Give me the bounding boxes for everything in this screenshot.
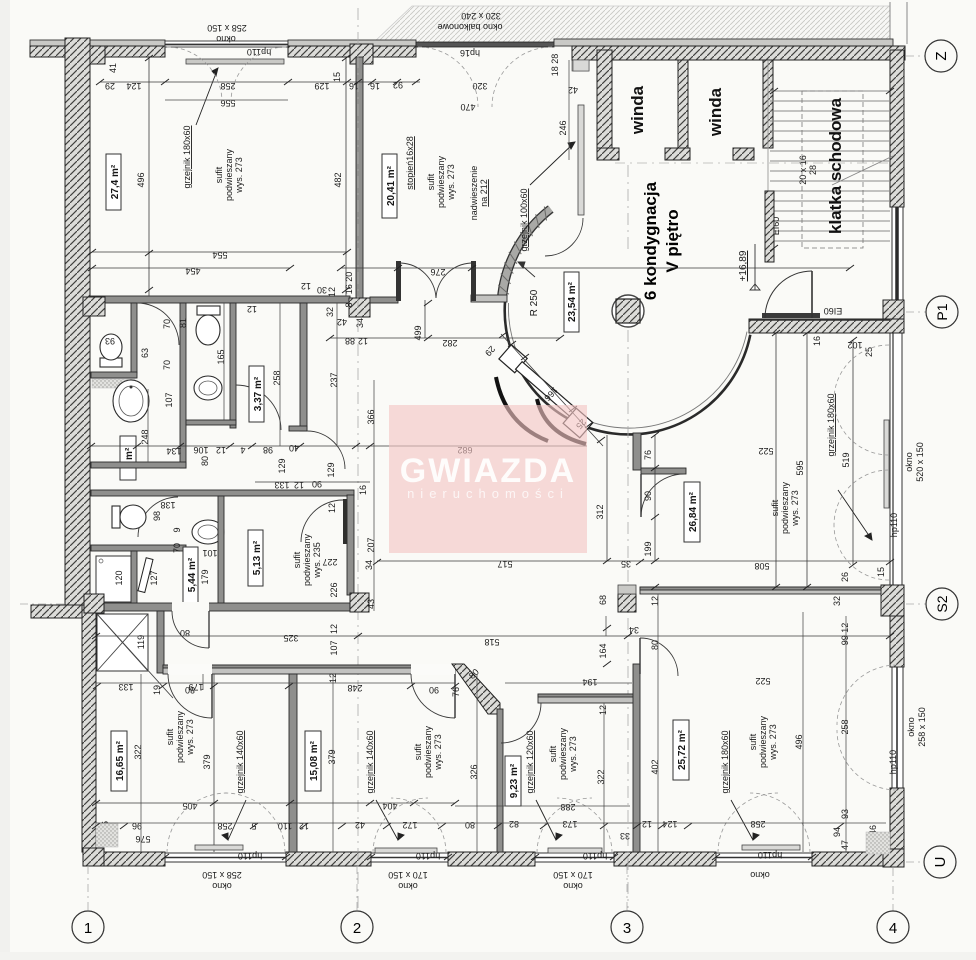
svg-text:okno: okno — [398, 881, 418, 891]
svg-text:379: 379 — [327, 749, 337, 764]
svg-text:165: 165 — [216, 349, 226, 364]
svg-text:482: 482 — [333, 172, 343, 187]
svg-text:wys. 273: wys. 273 — [790, 490, 800, 527]
svg-text:325: 325 — [283, 633, 298, 643]
svg-text:258: 258 — [840, 719, 850, 734]
svg-text:wys. 273: wys. 273 — [234, 157, 244, 194]
svg-text:U: U — [932, 857, 949, 868]
svg-text:15,08 m²: 15,08 m² — [309, 740, 320, 781]
svg-text:sufit: sufit — [548, 745, 558, 762]
svg-text:34: 34 — [364, 560, 374, 570]
svg-text:322: 322 — [596, 769, 606, 784]
svg-text:hp16: hp16 — [460, 48, 480, 58]
svg-text:520 x 150: 520 x 150 — [915, 442, 925, 482]
svg-text:Z: Z — [933, 51, 950, 60]
svg-text:258 x 150: 258 x 150 — [917, 707, 927, 747]
svg-text:+16,89: +16,89 — [738, 250, 749, 281]
svg-text:90: 90 — [643, 491, 653, 501]
svg-text:12: 12 — [216, 445, 226, 455]
svg-text:172: 172 — [402, 820, 417, 830]
svg-text:207: 207 — [366, 537, 376, 552]
svg-text:5,44 m²: 5,44 m² — [187, 557, 198, 592]
svg-text:170 x 150: 170 x 150 — [388, 870, 428, 880]
svg-text:winda: winda — [628, 85, 647, 135]
svg-text:35: 35 — [621, 559, 631, 569]
svg-text:hp110: hp110 — [758, 850, 782, 860]
svg-text:hp110: hp110 — [238, 851, 262, 861]
svg-text:98: 98 — [263, 445, 273, 455]
svg-text:podwieszany: podwieszany — [758, 715, 768, 768]
svg-text:okno: okno — [750, 870, 770, 880]
svg-text:S2: S2 — [934, 595, 950, 612]
svg-text:326: 326 — [469, 764, 479, 779]
svg-text:576: 576 — [135, 834, 150, 844]
svg-text:okno: okno — [906, 717, 916, 737]
svg-text:70: 70 — [162, 360, 172, 370]
svg-text:podwieszany: podwieszany — [436, 155, 446, 208]
svg-text:246: 246 — [558, 120, 568, 135]
svg-text:402: 402 — [650, 759, 660, 774]
svg-text:508: 508 — [754, 561, 769, 571]
svg-text:nieruchomości: nieruchomości — [407, 486, 569, 501]
svg-text:68: 68 — [598, 595, 608, 605]
svg-text:179: 179 — [188, 682, 203, 692]
svg-text:sufit: sufit — [165, 728, 175, 745]
svg-text:518: 518 — [484, 637, 499, 647]
svg-text:173: 173 — [562, 819, 577, 829]
svg-text:winda: winda — [706, 87, 725, 137]
svg-text:15: 15 — [332, 72, 342, 82]
svg-text:hp110: hp110 — [583, 851, 607, 861]
svg-text:wys. 273: wys. 273 — [768, 724, 778, 761]
svg-text:EI60: EI60 — [824, 306, 843, 316]
svg-text:101: 101 — [202, 548, 217, 558]
svg-text:93: 93 — [840, 809, 850, 819]
svg-text:366: 366 — [366, 409, 376, 424]
svg-text:6 kondygnacja: 6 kondygnacja — [641, 181, 660, 300]
svg-text:81: 81 — [178, 318, 188, 328]
svg-text:grzejnik 180x60: grzejnik 180x60 — [182, 125, 192, 188]
svg-text:16: 16 — [812, 336, 822, 346]
svg-text:okno balkonowe: okno balkonowe — [437, 22, 502, 32]
svg-text:43: 43 — [366, 599, 376, 609]
svg-text:496: 496 — [136, 172, 146, 187]
svg-text:164: 164 — [598, 643, 608, 658]
svg-text:76: 76 — [643, 450, 653, 460]
svg-text:R 250: R 250 — [529, 289, 540, 316]
svg-text:98: 98 — [152, 511, 162, 521]
svg-text:12: 12 — [650, 596, 660, 606]
svg-text:5,13 m²: 5,13 m² — [252, 540, 263, 575]
svg-text:93: 93 — [105, 336, 115, 346]
svg-text:133: 133 — [274, 480, 289, 490]
svg-text:4: 4 — [889, 920, 897, 937]
svg-text:hp110: hp110 — [889, 513, 899, 537]
svg-text:1: 1 — [84, 920, 92, 937]
svg-text:okno: okno — [904, 452, 914, 472]
svg-text:12: 12 — [301, 281, 311, 291]
svg-text:sufit: sufit — [770, 499, 780, 516]
svg-text:138: 138 — [160, 500, 175, 510]
svg-text:12: 12 — [598, 705, 608, 715]
svg-text:42: 42 — [337, 317, 347, 327]
svg-text:wys. 273: wys. 273 — [185, 719, 195, 756]
svg-text:wys. 273: wys. 273 — [568, 736, 578, 773]
svg-text:110: 110 — [278, 821, 292, 831]
svg-text:312: 312 — [595, 504, 605, 519]
svg-text:hp110: hp110 — [416, 851, 440, 861]
svg-text:9: 9 — [172, 527, 182, 532]
svg-text:okno: okno — [212, 881, 232, 891]
svg-text:134: 134 — [166, 446, 181, 456]
svg-text:16,65 m²: 16,65 m² — [115, 740, 126, 781]
svg-text:106: 106 — [193, 445, 208, 455]
svg-text:grzejnik 180x60: grzejnik 180x60 — [720, 730, 730, 793]
svg-text:12: 12 — [294, 480, 304, 490]
svg-text:12: 12 — [327, 287, 337, 297]
svg-text:podwieszany: podwieszany — [558, 727, 568, 780]
svg-text:34: 34 — [629, 625, 639, 635]
svg-text:podwieszany: podwieszany — [175, 710, 185, 763]
svg-text:sufit: sufit — [292, 551, 302, 568]
svg-text:107: 107 — [329, 640, 339, 655]
svg-text:42: 42 — [568, 85, 578, 95]
svg-text:sufit: sufit — [426, 173, 436, 190]
svg-text:33: 33 — [620, 831, 630, 841]
svg-text:454: 454 — [185, 266, 200, 276]
svg-text:248: 248 — [347, 683, 362, 693]
svg-text:klatka schodowa: klatka schodowa — [826, 97, 845, 234]
svg-text:82: 82 — [509, 819, 519, 829]
svg-text:12: 12 — [642, 819, 652, 829]
svg-text:nadwieszenie: nadwieszenie — [469, 166, 479, 221]
svg-text:GWIAZDA: GWIAZDA — [400, 452, 576, 490]
svg-text:32: 32 — [832, 596, 842, 606]
svg-text:32: 32 — [325, 307, 335, 317]
svg-text:23,54 m²: 23,54 m² — [567, 281, 578, 322]
svg-text:276: 276 — [430, 267, 445, 277]
svg-text:podwieszany: podwieszany — [423, 725, 433, 778]
svg-text:88: 88 — [345, 336, 355, 346]
svg-text:8: 8 — [344, 302, 354, 307]
svg-text:9,23 m²: 9,23 m² — [509, 763, 520, 798]
svg-text:237: 237 — [329, 372, 339, 387]
svg-text:282: 282 — [442, 338, 457, 348]
svg-text:522: 522 — [758, 446, 773, 456]
svg-text:80: 80 — [650, 640, 660, 650]
svg-text:15: 15 — [876, 567, 886, 577]
svg-text:okno: okno — [216, 34, 236, 44]
svg-text:3: 3 — [623, 920, 631, 937]
svg-text:grzejnik 140x60: grzejnik 140x60 — [235, 730, 245, 793]
svg-text:258: 258 — [217, 821, 232, 831]
svg-text:25: 25 — [864, 347, 874, 357]
svg-text:28: 28 — [808, 165, 818, 175]
svg-text:258 x 150: 258 x 150 — [207, 23, 247, 33]
svg-text:sufit: sufit — [413, 743, 423, 760]
svg-text:99 12: 99 12 — [840, 623, 850, 646]
svg-text:12: 12 — [327, 503, 337, 513]
svg-text:107: 107 — [164, 392, 174, 407]
svg-text:27,4 m²: 27,4 m² — [110, 164, 121, 199]
svg-text:119: 119 — [136, 635, 146, 649]
svg-text:496: 496 — [794, 734, 804, 749]
svg-text:170 x 150: 170 x 150 — [553, 870, 593, 880]
svg-text:517: 517 — [497, 559, 512, 569]
svg-text:grzejnik 140x60: grzejnik 140x60 — [365, 730, 375, 793]
svg-text:34: 34 — [355, 318, 365, 328]
svg-text:199: 199 — [643, 541, 653, 556]
svg-text:hp110: hp110 — [247, 47, 271, 57]
svg-text:wys. 235: wys. 235 — [312, 542, 322, 579]
svg-text:2: 2 — [353, 920, 361, 937]
svg-text:41: 41 — [108, 63, 118, 73]
svg-text:519: 519 — [841, 452, 851, 467]
svg-text:470: 470 — [460, 102, 475, 112]
svg-text:90: 90 — [312, 479, 322, 489]
svg-text:hp110: hp110 — [888, 750, 898, 774]
svg-text:podwieszany: podwieszany — [780, 481, 790, 534]
svg-text:47: 47 — [840, 840, 850, 850]
svg-text:120: 120 — [114, 570, 124, 585]
svg-text:80: 80 — [200, 456, 210, 466]
svg-text:322: 322 — [133, 744, 143, 759]
svg-text:124: 124 — [126, 81, 141, 91]
svg-text:30: 30 — [317, 285, 327, 295]
svg-text:wys. 273: wys. 273 — [446, 164, 456, 201]
svg-text:grzejnik 120x60: grzejnik 120x60 — [525, 730, 535, 793]
svg-text:63: 63 — [140, 348, 150, 358]
svg-text:25,72 m²: 25,72 m² — [677, 729, 688, 770]
svg-text:20,41 m²: 20,41 m² — [386, 165, 397, 206]
svg-text:na 212: na 212 — [479, 179, 489, 207]
svg-text:12: 12 — [247, 304, 257, 314]
svg-text:379: 379 — [202, 754, 212, 769]
svg-text:288: 288 — [560, 802, 575, 812]
svg-text:129: 129 — [314, 81, 329, 91]
svg-text:522: 522 — [755, 676, 770, 686]
svg-text:70: 70 — [172, 543, 182, 553]
svg-text:podwieszany: podwieszany — [224, 148, 234, 201]
svg-text:3,37 m²: 3,37 m² — [253, 376, 264, 411]
svg-text:258 x 150: 258 x 150 — [202, 870, 242, 880]
svg-text:stopień16x28: stopień16x28 — [405, 136, 415, 190]
svg-text:258: 258 — [750, 819, 765, 829]
svg-text:80: 80 — [180, 628, 190, 638]
svg-text:595: 595 — [795, 460, 805, 475]
svg-text:248: 248 — [140, 429, 150, 444]
svg-text:194: 194 — [582, 677, 597, 687]
svg-text:grzejnik 100x60: grzejnik 100x60 — [519, 188, 529, 251]
svg-text:4: 4 — [240, 445, 245, 455]
svg-text:sufit: sufit — [748, 733, 758, 750]
svg-text:258: 258 — [272, 370, 282, 385]
svg-text:sufit: sufit — [214, 166, 224, 183]
svg-text:29: 29 — [105, 81, 115, 91]
svg-text:26: 26 — [840, 572, 850, 582]
svg-text:okno: okno — [563, 881, 583, 891]
svg-text:12: 12 — [329, 624, 339, 634]
svg-text:80: 80 — [465, 820, 475, 830]
svg-text:133: 133 — [118, 682, 133, 692]
svg-text:18 28: 18 28 — [550, 54, 560, 77]
svg-text:V piętro: V piętro — [663, 209, 682, 272]
svg-text:26,84 m²: 26,84 m² — [688, 491, 699, 532]
svg-text:179: 179 — [200, 569, 210, 584]
svg-text:405: 405 — [182, 801, 197, 811]
svg-text:102: 102 — [847, 340, 862, 350]
svg-text:20 x 16: 20 x 16 — [798, 155, 808, 185]
svg-text:404: 404 — [382, 801, 397, 811]
svg-text:16: 16 — [358, 485, 368, 495]
svg-text:P1: P1 — [934, 303, 950, 320]
svg-text:90: 90 — [429, 685, 439, 695]
svg-text:19: 19 — [152, 685, 162, 695]
svg-text:227: 227 — [322, 557, 337, 567]
svg-text:96: 96 — [132, 821, 142, 831]
svg-text:podwieszany: podwieszany — [302, 533, 312, 586]
svg-text:554: 554 — [212, 250, 227, 260]
svg-text:wys. 273: wys. 273 — [433, 734, 443, 771]
svg-text:42: 42 — [355, 820, 365, 830]
svg-text:226: 226 — [329, 582, 339, 597]
svg-text:70: 70 — [162, 319, 172, 329]
svg-text:127: 127 — [149, 570, 159, 585]
svg-text:129: 129 — [277, 458, 287, 473]
svg-text:556: 556 — [220, 98, 235, 108]
svg-text:12: 12 — [358, 336, 368, 346]
svg-text:320 x 240: 320 x 240 — [461, 11, 501, 21]
svg-text:129: 129 — [326, 462, 336, 477]
svg-text:320: 320 — [472, 81, 487, 91]
svg-text:grzejnik 180x60: grzejnik 180x60 — [826, 393, 836, 456]
